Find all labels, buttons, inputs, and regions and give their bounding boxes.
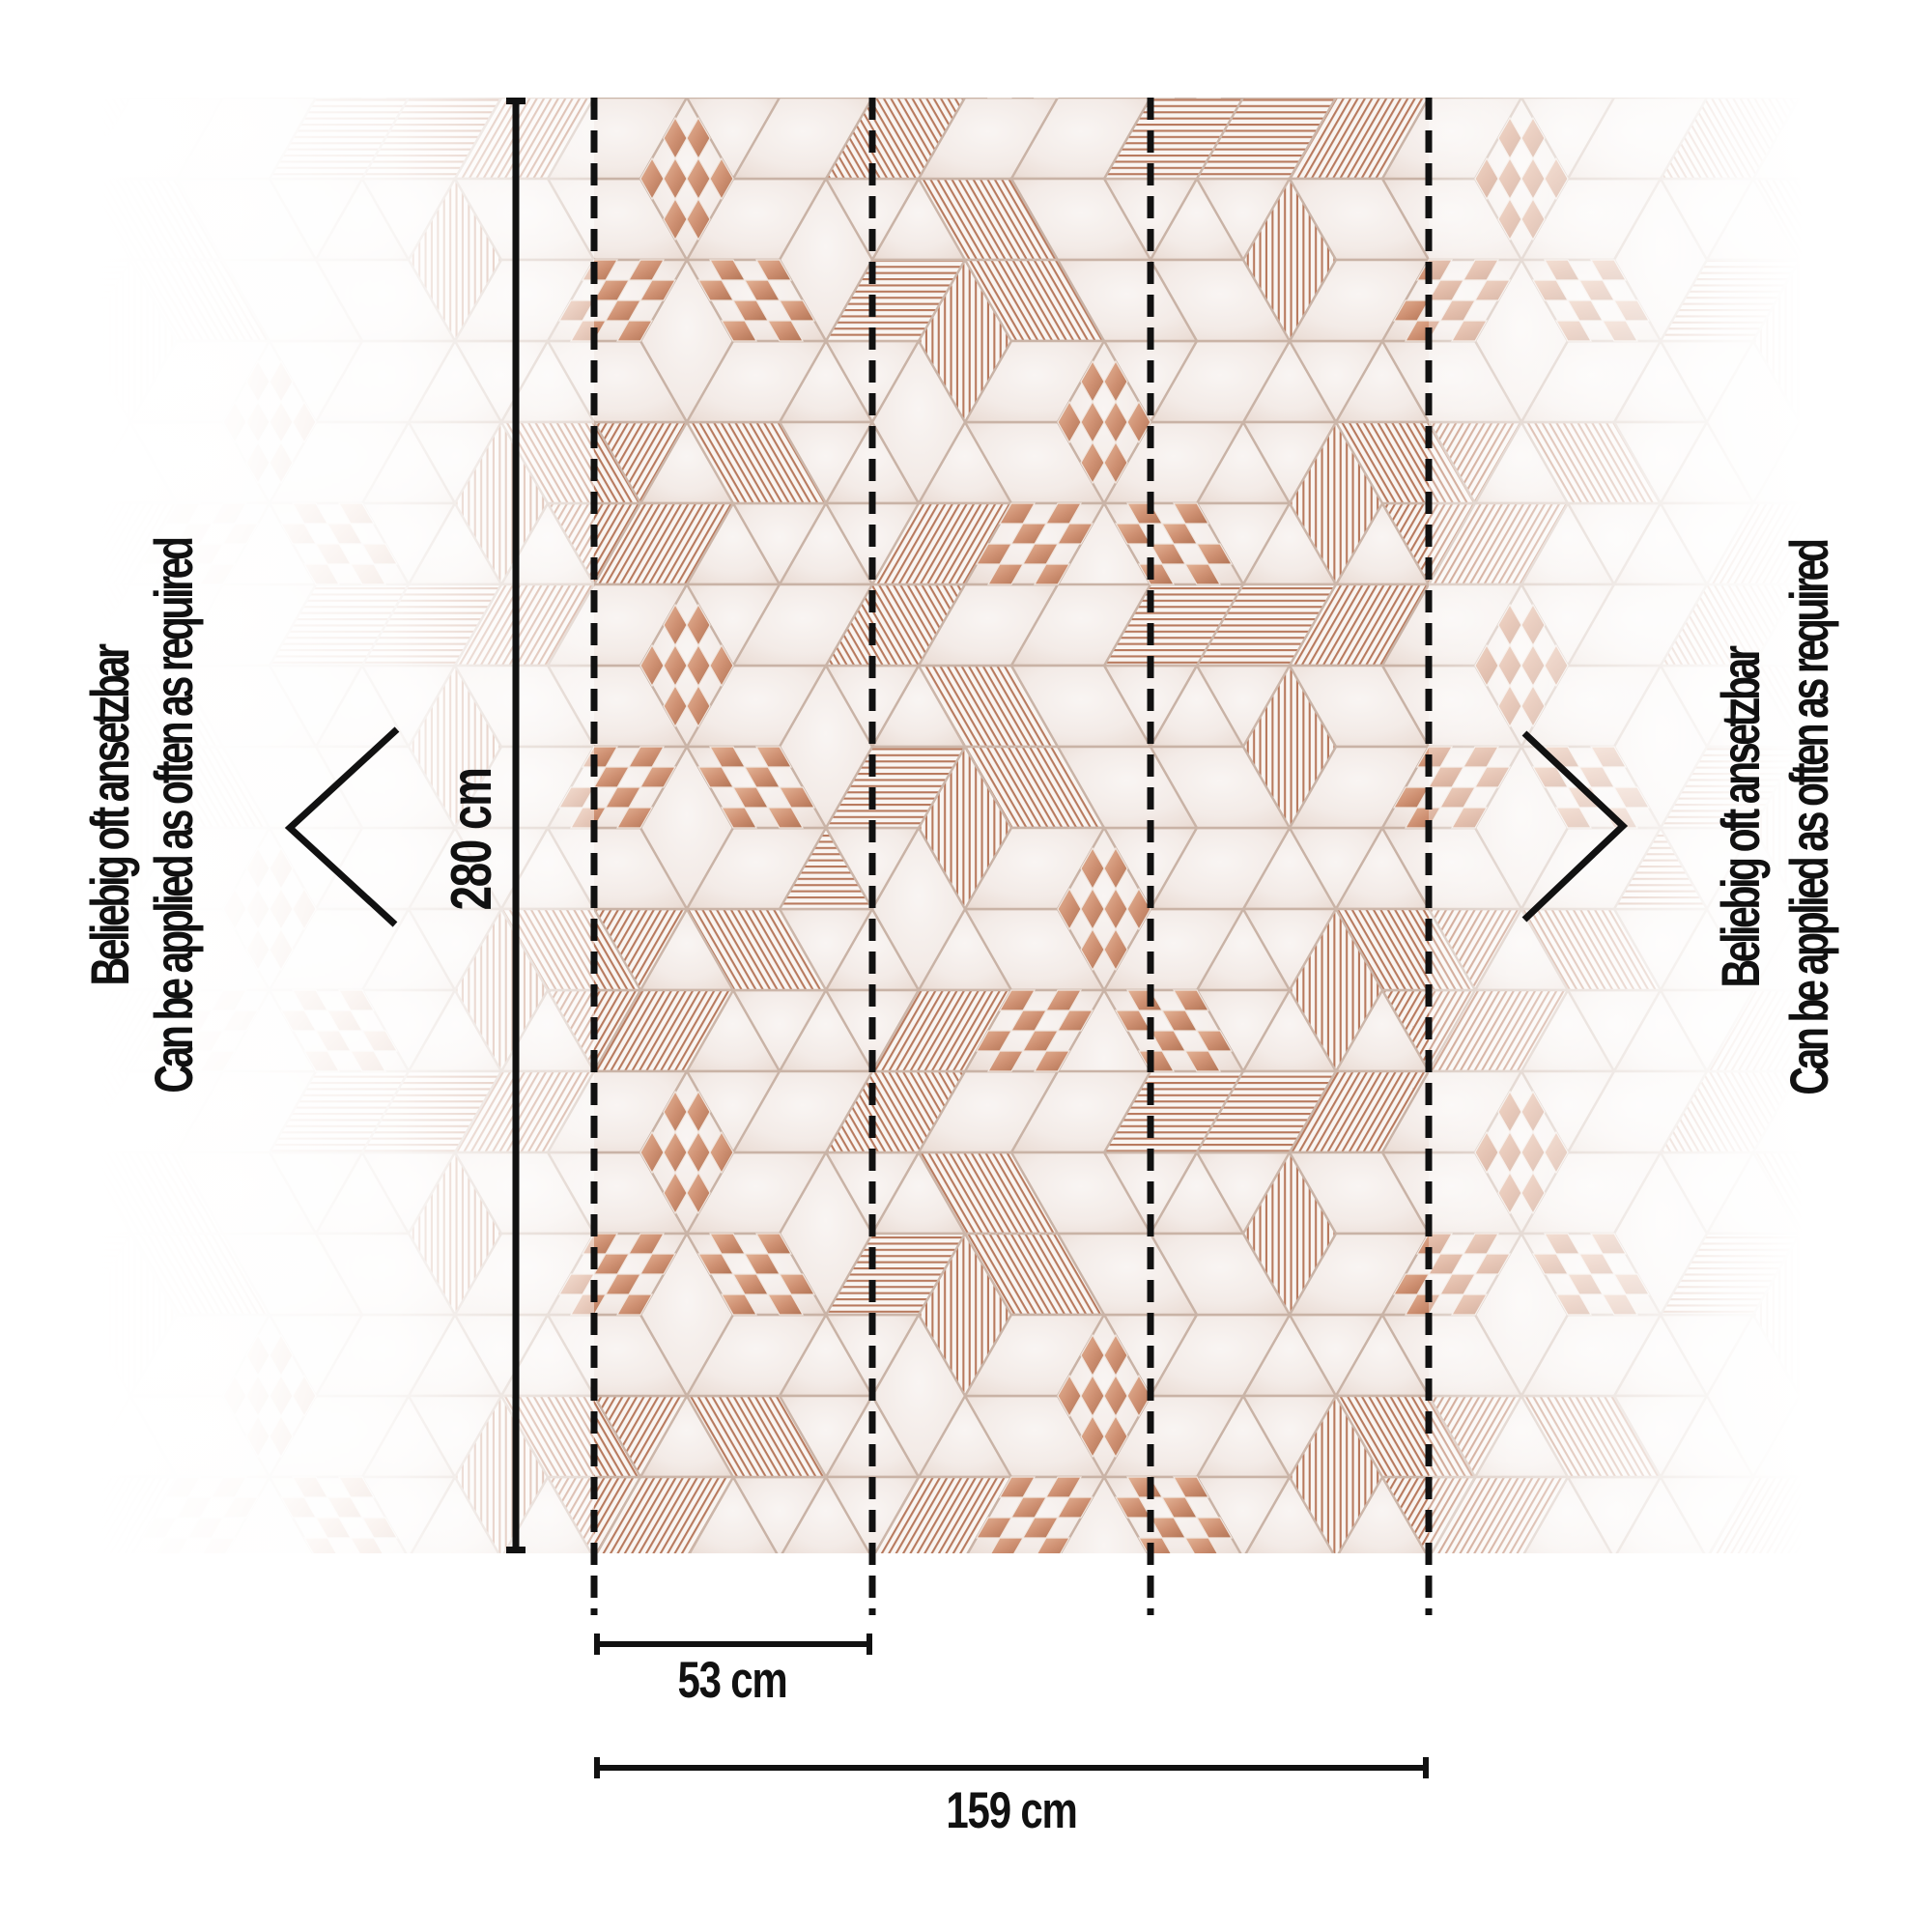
svg-text:Can be applied as often as req: Can be applied as often as required [1780,540,1839,1094]
svg-text:Beliebig oft ansetzbar: Beliebig oft ansetzbar [1712,645,1771,987]
svg-text:280 cm: 280 cm [440,769,503,911]
svg-text:Can be applied as often as req: Can be applied as often as required [145,538,204,1093]
svg-text:159 cm: 159 cm [946,1783,1076,1840]
svg-text:Beliebig oft ansetzbar: Beliebig oft ansetzbar [81,643,140,985]
svg-text:53 cm: 53 cm [677,1653,786,1710]
